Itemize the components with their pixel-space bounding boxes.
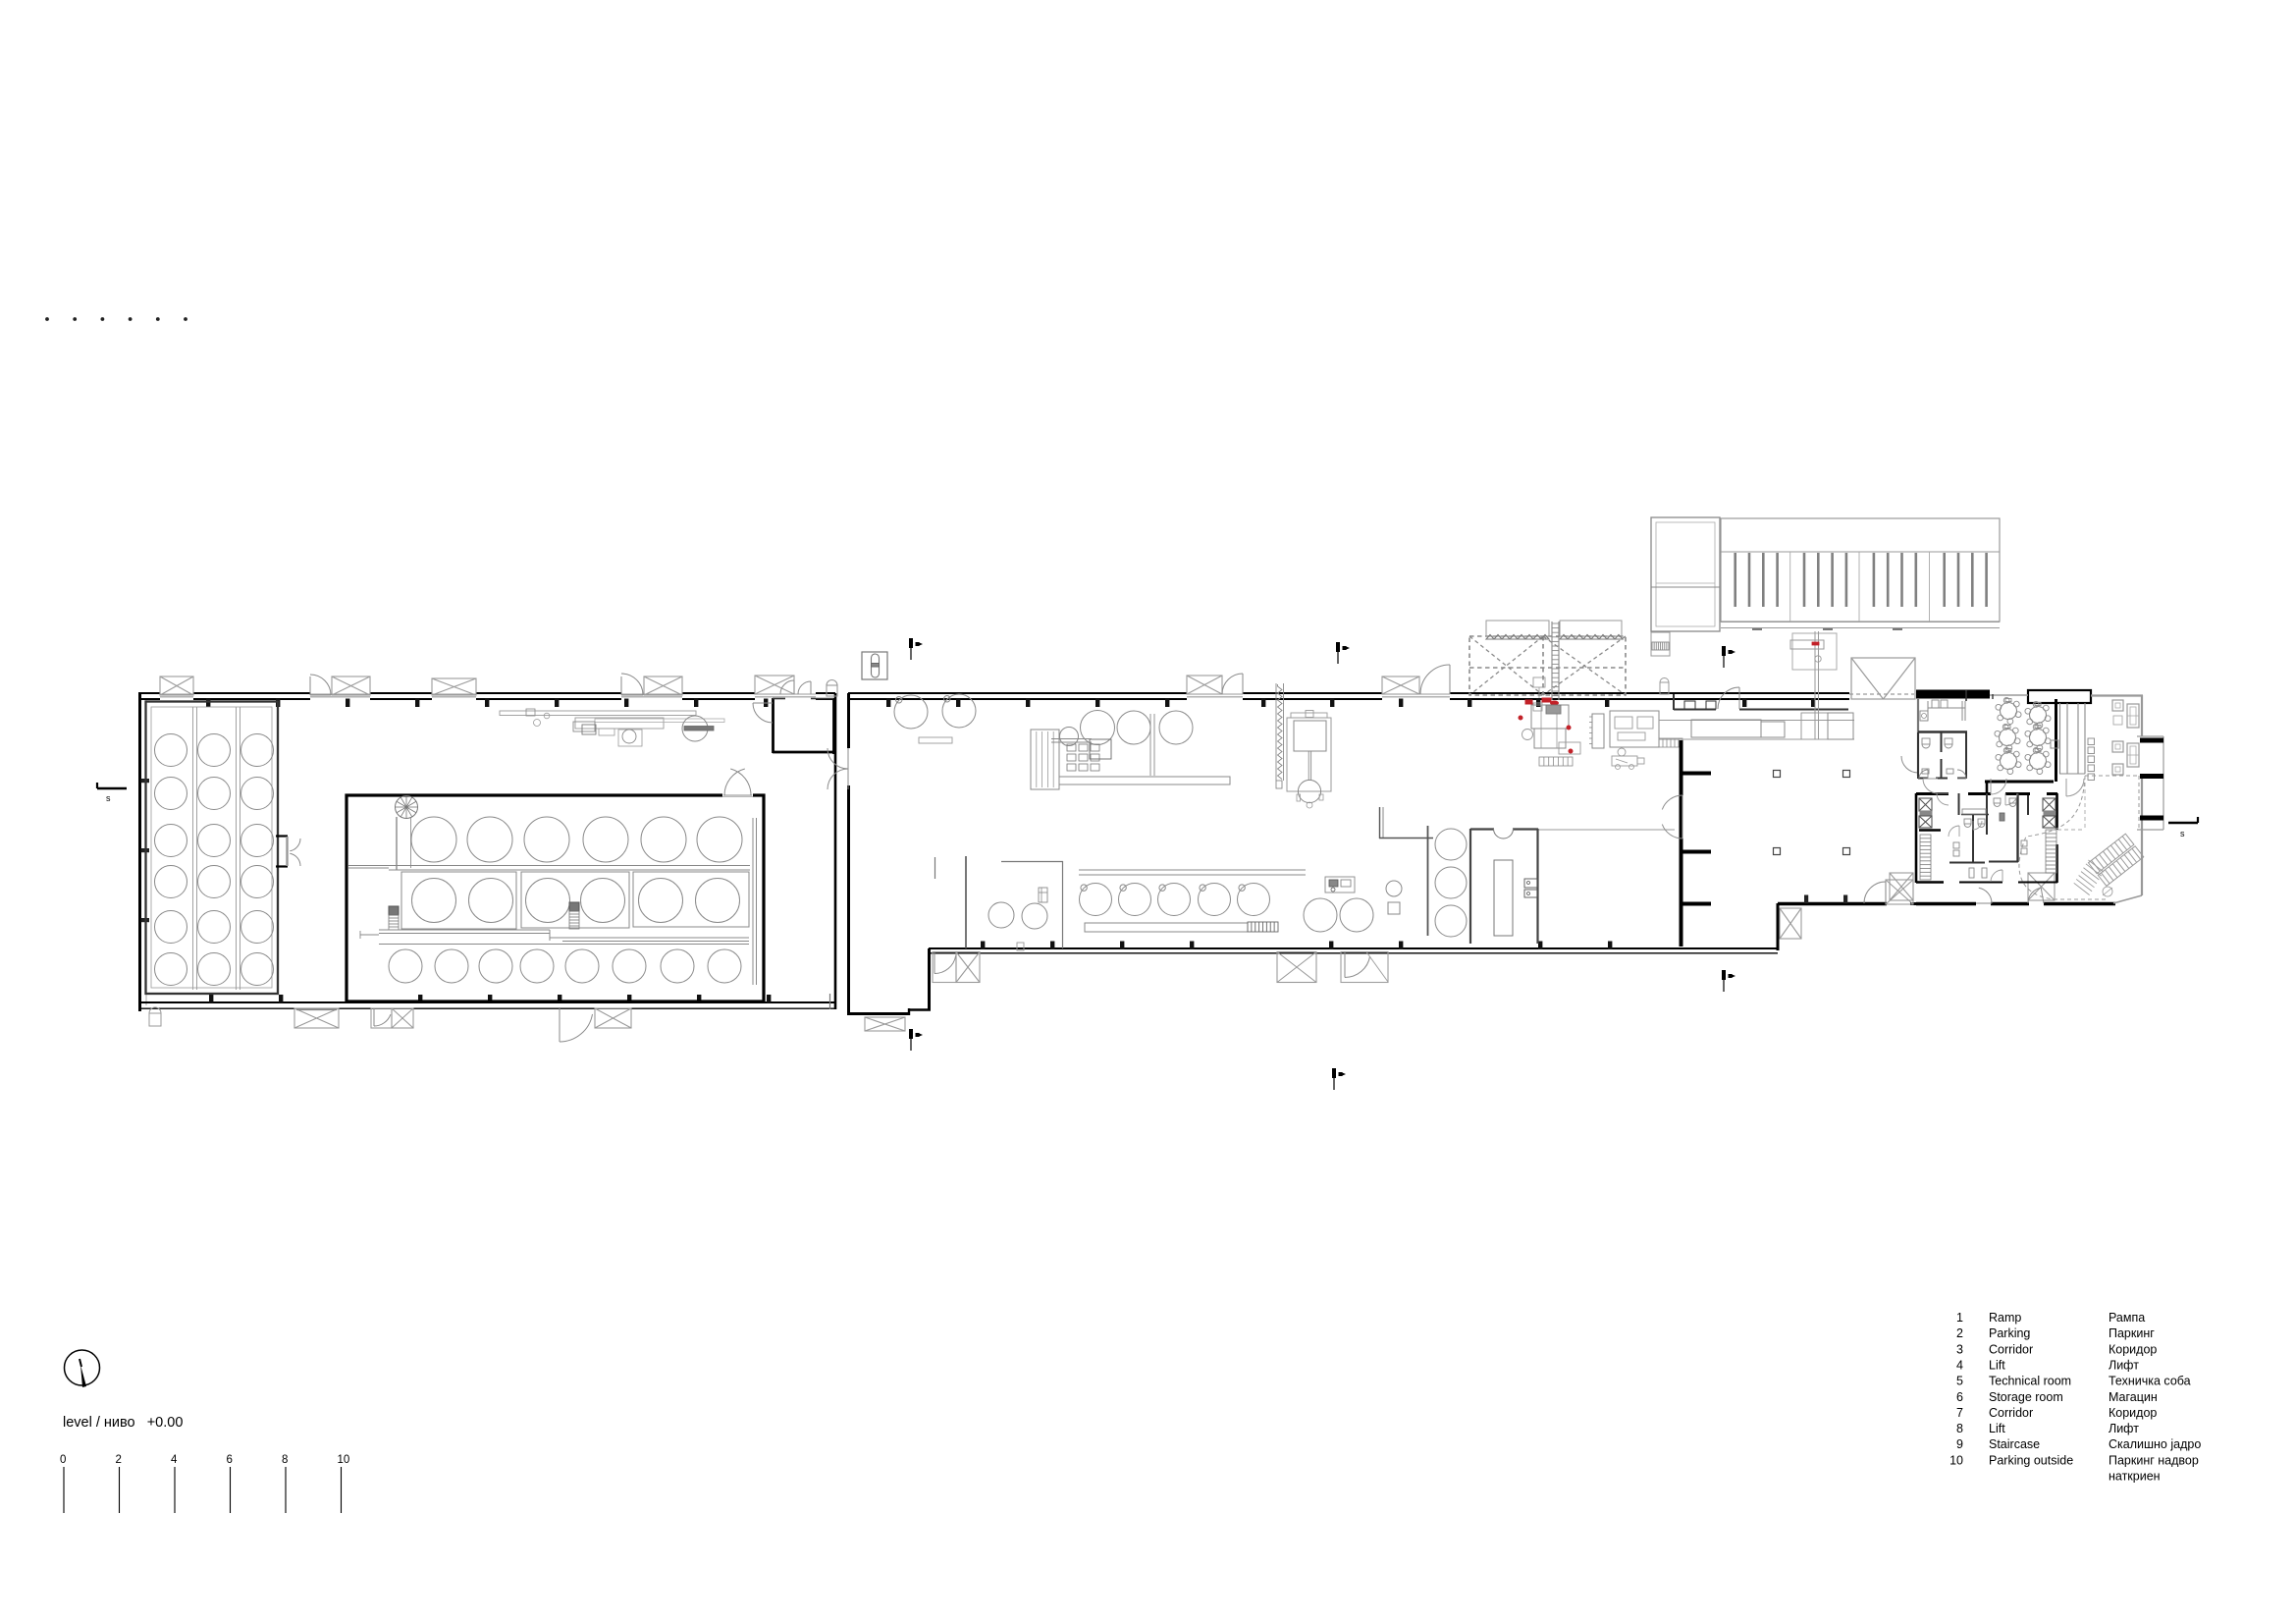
- svg-text:наткриен: наткриен: [2109, 1470, 2161, 1484]
- svg-text:Коридор: Коридор: [2109, 1406, 2157, 1420]
- svg-text:Corridor: Corridor: [1989, 1342, 2033, 1356]
- svg-text:Parking: Parking: [1989, 1326, 2030, 1340]
- svg-text:6: 6: [227, 1454, 233, 1466]
- svg-text:6: 6: [1956, 1390, 1963, 1404]
- svg-text:Лифт: Лифт: [2109, 1422, 2139, 1435]
- svg-text:0: 0: [60, 1454, 66, 1466]
- svg-text:2: 2: [116, 1454, 122, 1466]
- svg-text:Паркинг: Паркинг: [2109, 1326, 2155, 1340]
- svg-text:s: s: [106, 793, 111, 803]
- svg-text:Lift: Lift: [1989, 1358, 2005, 1372]
- svg-text:Technical room: Technical room: [1989, 1375, 2071, 1388]
- svg-text:Storage room: Storage room: [1989, 1390, 2063, 1404]
- svg-text:Ramp: Ramp: [1989, 1311, 2021, 1325]
- svg-text:4: 4: [171, 1454, 178, 1466]
- svg-text:level / ниво +0.00: level / ниво +0.00: [63, 1415, 183, 1431]
- svg-text:8: 8: [1956, 1422, 1963, 1435]
- svg-text:Скалишно јадро: Скалишно јадро: [2109, 1437, 2201, 1451]
- svg-text:Staircase: Staircase: [1989, 1437, 2040, 1451]
- svg-text:Лифт: Лифт: [2109, 1358, 2139, 1372]
- svg-text:5: 5: [1956, 1375, 1963, 1388]
- svg-text:Lift: Lift: [1989, 1422, 2005, 1435]
- svg-text:2: 2: [1956, 1326, 1963, 1340]
- svg-text:Магацин: Магацин: [2109, 1390, 2158, 1404]
- svg-text:Паркинг надвор: Паркинг надвор: [2109, 1453, 2199, 1467]
- svg-text:Техничка соба: Техничка соба: [2109, 1375, 2191, 1388]
- svg-text:Коридор: Коридор: [2109, 1342, 2157, 1356]
- svg-text:Corridor: Corridor: [1989, 1406, 2033, 1420]
- svg-text:4: 4: [1956, 1358, 1963, 1372]
- svg-text:10: 10: [338, 1454, 350, 1466]
- svg-text:8: 8: [282, 1454, 288, 1466]
- svg-text:9: 9: [1956, 1437, 1963, 1451]
- svg-text:1: 1: [1956, 1311, 1963, 1325]
- svg-text:Parking outside: Parking outside: [1989, 1453, 2073, 1467]
- svg-text:7: 7: [1956, 1406, 1963, 1420]
- svg-text:10: 10: [1949, 1453, 1963, 1467]
- svg-text:3: 3: [1956, 1342, 1963, 1356]
- svg-text:Рампа: Рампа: [2109, 1311, 2145, 1325]
- svg-text:s: s: [2180, 829, 2185, 839]
